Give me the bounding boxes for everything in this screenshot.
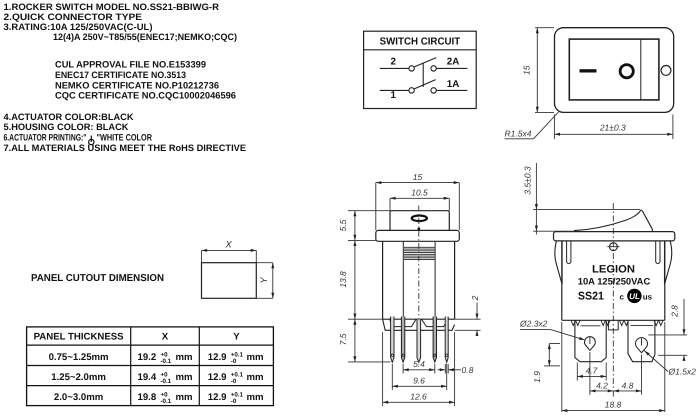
svg-text:4.8: 4.8	[622, 380, 634, 390]
svg-text:5.5: 5.5	[338, 219, 348, 231]
svg-text:-0: -0	[231, 378, 237, 385]
svg-text:X: X	[162, 332, 169, 343]
svg-text:mm: mm	[176, 392, 193, 403]
svg-text:us: us	[643, 292, 653, 301]
svg-text:UL: UL	[629, 292, 640, 301]
svg-text:12.9: 12.9	[208, 352, 227, 363]
svg-text:c: c	[620, 292, 625, 301]
svg-text:SWITCH CIRCUIT: SWITCH CIRCUIT	[380, 37, 461, 48]
svg-text:21±0.3: 21±0.3	[599, 123, 626, 133]
svg-text:7.5: 7.5	[338, 333, 348, 345]
svg-text:2.8: 2.8	[670, 305, 680, 318]
svg-text:mm: mm	[176, 352, 193, 363]
svg-text:12(4)A 250V~T85/55(ENEC17;NEMK: 12(4)A 250V~T85/55(ENEC17;NEMKO;CQC)	[53, 32, 237, 42]
svg-text:-0: -0	[231, 398, 237, 405]
svg-text:3.5±0.3: 3.5±0.3	[523, 166, 533, 195]
svg-text:LEGION: LEGION	[592, 264, 635, 276]
svg-text:X: X	[224, 240, 232, 251]
svg-text:19.2: 19.2	[138, 352, 157, 363]
svg-text:R1.5x4: R1.5x4	[505, 129, 532, 139]
svg-text:3.RATING:10A 125/250VAC(C-UL): 3.RATING:10A 125/250VAC(C-UL)	[4, 22, 153, 32]
svg-text:-0.1: -0.1	[161, 358, 172, 365]
svg-text:1: 1	[391, 90, 397, 101]
svg-text:9.6: 9.6	[413, 375, 425, 385]
svg-text:1.ROCKER SWITCH MODEL NO.SS21-: 1.ROCKER SWITCH MODEL NO.SS21-BBIWG-R	[4, 2, 220, 12]
svg-text:13.8: 13.8	[338, 271, 348, 288]
svg-text:Y: Y	[233, 332, 240, 343]
svg-text:Y: Y	[259, 277, 270, 284]
svg-text:2.0~3.0mm: 2.0~3.0mm	[54, 392, 103, 403]
svg-text:CQC CERTIFICATE NO.CQC10002046: CQC CERTIFICATE NO.CQC10002046596	[55, 91, 236, 101]
svg-text:15: 15	[522, 65, 532, 75]
svg-text:NEMKO CERTIFICATE NO.P10212736: NEMKO CERTIFICATE NO.P10212736	[55, 80, 219, 90]
svg-text:1.25~2.0mm: 1.25~2.0mm	[51, 372, 106, 383]
svg-text:1A: 1A	[447, 79, 460, 90]
svg-text:ENEC17 CERTIFICATE NO.3513: ENEC17 CERTIFICATE NO.3513	[55, 70, 186, 80]
svg-text:mm: mm	[247, 392, 264, 403]
svg-text:2.QUICK CONNECTOR TYPE: 2.QUICK CONNECTOR TYPE	[4, 12, 143, 22]
svg-text:19.4: 19.4	[138, 372, 157, 383]
svg-text:4.7: 4.7	[586, 366, 598, 376]
svg-text:-0: -0	[231, 358, 237, 365]
svg-text:CUL APPROVAL FILE NO.E153399: CUL APPROVAL FILE NO.E153399	[55, 60, 206, 70]
svg-text:5.HOUSING COLOR: BLACK: 5.HOUSING COLOR: BLACK	[4, 122, 129, 132]
svg-text:6.ACTUATOR PRINTING:": 6.ACTUATOR PRINTING:"	[4, 133, 87, 143]
svg-text:PANEL CUTOUT DIMENSION: PANEL CUTOUT DIMENSION	[31, 273, 164, 284]
svg-text:18.8: 18.8	[605, 399, 622, 409]
svg-text:1.9: 1.9	[532, 371, 542, 383]
svg-text:4.ACTUATOR COLOR:BLACK: 4.ACTUATOR COLOR:BLACK	[4, 112, 134, 122]
svg-text:10A 125/250VAC: 10A 125/250VAC	[578, 276, 651, 287]
svg-text:-0.1: -0.1	[161, 378, 172, 385]
svg-text:0.75~1.25mm: 0.75~1.25mm	[49, 352, 109, 363]
svg-text:4.2: 4.2	[596, 380, 608, 390]
svg-text:"WHITE COLOR: "WHITE COLOR	[97, 133, 153, 143]
svg-text:2A: 2A	[447, 57, 460, 68]
svg-text:2: 2	[470, 295, 480, 301]
svg-text:5.4: 5.4	[413, 359, 425, 369]
svg-text:PANEL THICKNESS: PANEL THICKNESS	[34, 332, 125, 343]
svg-text:mm: mm	[247, 352, 264, 363]
svg-text:12.9: 12.9	[208, 392, 227, 403]
svg-text:0.8: 0.8	[462, 365, 474, 375]
svg-text:7.ALL MATERIALS USING MEET THE: 7.ALL MATERIALS USING MEET THE RoHS DIRE…	[4, 143, 247, 153]
svg-text:12.6: 12.6	[410, 391, 427, 401]
svg-text:2: 2	[391, 57, 397, 68]
svg-text:10.5: 10.5	[411, 188, 428, 198]
svg-text:Ø1.5x2: Ø1.5x2	[668, 367, 697, 377]
svg-text:12.9: 12.9	[208, 372, 227, 383]
svg-text:mm: mm	[247, 372, 264, 383]
svg-text:-0.1: -0.1	[161, 398, 172, 405]
svg-text:Ø2.3x2: Ø2.3x2	[519, 318, 548, 328]
svg-text:mm: mm	[176, 372, 193, 383]
svg-text:15: 15	[413, 172, 423, 182]
svg-text:SS21: SS21	[578, 290, 604, 302]
svg-text:19.8: 19.8	[138, 392, 157, 403]
